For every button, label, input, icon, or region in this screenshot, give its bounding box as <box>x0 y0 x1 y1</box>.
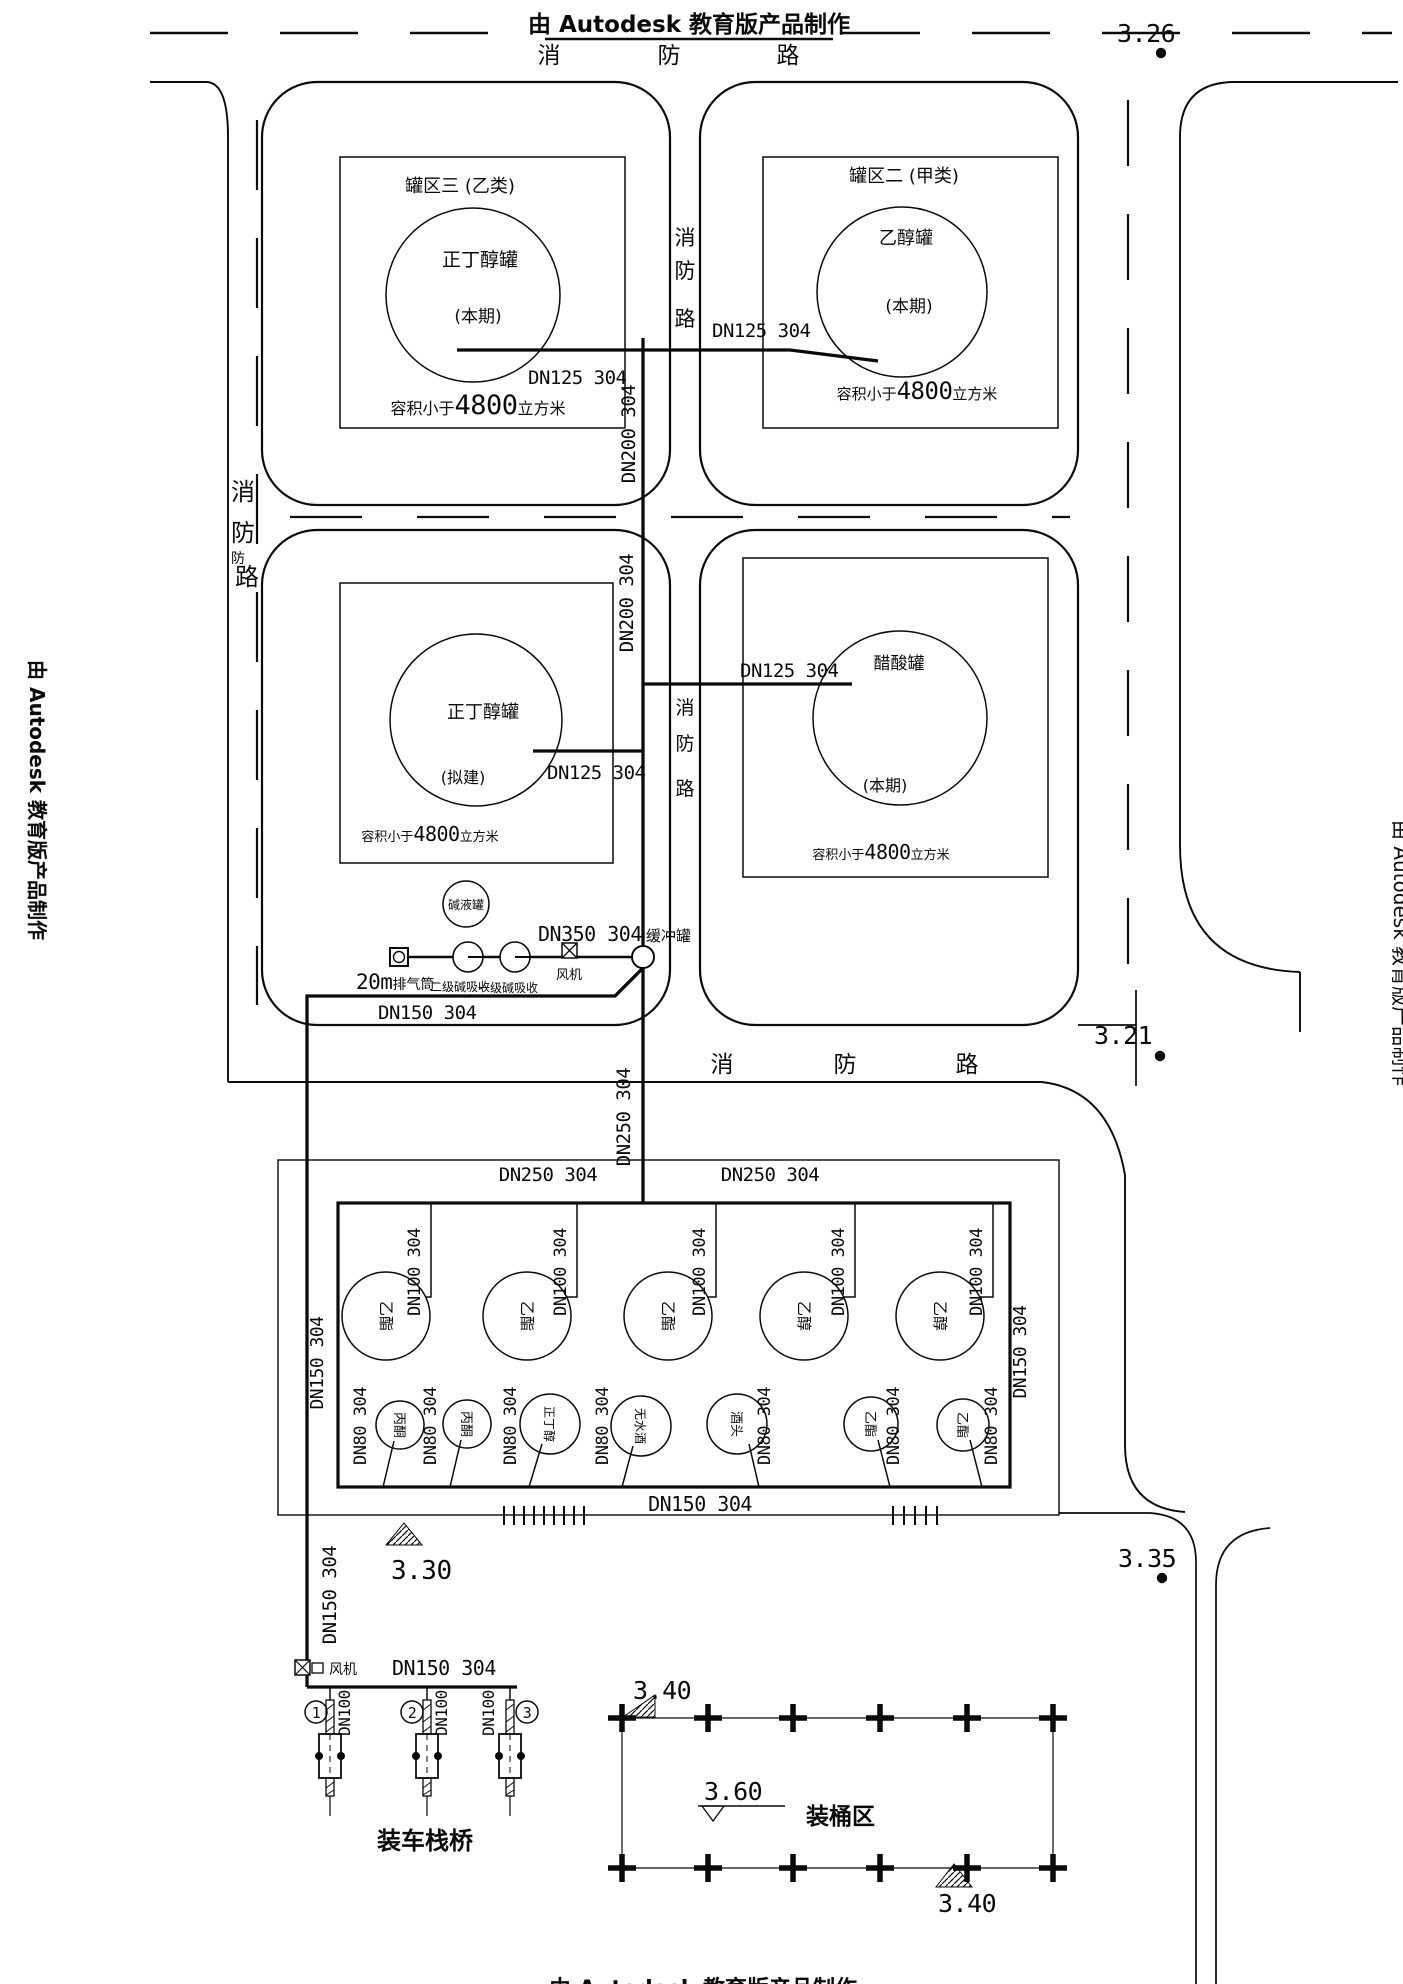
fan-label: 风机 <box>329 1662 357 1678</box>
farm-tank-label: 乙酯 <box>954 1412 969 1438</box>
road-edge-bottomright-outer <box>1216 1528 1270 1984</box>
pipe-label-dn150: DN150 304 <box>378 1002 477 1024</box>
road-label-bottom: 防 <box>834 1052 857 1078</box>
fan-label: 风机 <box>556 968 582 983</box>
tank-area-label: 罐区二 (甲类) <box>849 166 959 187</box>
pipe-label-dn100: DN100 304 <box>405 1228 425 1316</box>
road-label-center-row1: 消 <box>675 226 696 250</box>
pipe-label-dn150: DN150 304 <box>392 1656 496 1680</box>
benchmark-dot <box>1155 1051 1165 1061</box>
road-label-bottom: 路 <box>956 1052 979 1078</box>
tank-area-acetic: 醋酸罐 (本期) 容积小于4800立方米 <box>743 558 1048 877</box>
farm-tank-label: 丙酮 <box>458 1411 473 1437</box>
elevation-value: 3.21 <box>1094 1021 1152 1050</box>
pipe-label-dn150: DN150 304 <box>319 1546 341 1645</box>
station-number: 3 <box>523 1704 532 1722</box>
pipe-label-dn150: DN150 304 <box>648 1492 752 1516</box>
loading-arm <box>495 1687 525 1816</box>
volume-suffix: 立方米 <box>952 385 997 403</box>
volume-prefix: 容积小于 <box>361 829 413 845</box>
road-edge-bottomright-inner <box>1059 1513 1196 1984</box>
tank-area-2: 罐区二 (甲类) 乙醇罐 (本期) 容积小于4800立方米 <box>763 157 1058 428</box>
tank-volume: 容积小于4800立方米 <box>837 377 998 405</box>
road-curve-southeast-inner <box>1042 1082 1185 1512</box>
pipe-label-dn100-short: DN100 <box>479 1690 498 1736</box>
road-label-top: 防 <box>658 43 681 69</box>
elevation-value: 3.60 <box>704 1777 762 1806</box>
volume-number: 4800 <box>864 840 910 864</box>
stack-height: 20m <box>356 970 392 994</box>
fan-outlet-box <box>312 1663 323 1673</box>
tank-volume: 容积小于4800立方米 <box>390 390 565 421</box>
tank-name: 乙醇罐 <box>879 228 933 249</box>
autodesk-watermark-top: 由 Autodesk 教育版产品制作 <box>528 11 850 38</box>
pipe-label-dn200: DN200 304 <box>616 554 638 653</box>
tank-phase: (本期) <box>454 307 501 327</box>
drum-zone: 3.40 3.60 装桶区 3.40 <box>608 1676 1067 1918</box>
farm-tank-label: 乙醇 <box>795 1301 813 1331</box>
road-label-center-row1: 防 <box>675 259 696 283</box>
tank-name: 醋酸罐 <box>874 654 925 674</box>
autodesk-watermark-right: 由 Autodesk 教育版产品制作 <box>1389 820 1403 1086</box>
pipe-label-dn100: DN100 304 <box>551 1228 571 1316</box>
column-crosses <box>608 1704 1067 1882</box>
cad-site-plan: 消 防 路 消 防 防 路 消 防 路 消 防 路 消 防 路 罐区三 (乙类)… <box>0 0 1403 1984</box>
volume-number: 4800 <box>897 377 953 405</box>
volume-number: 4800 <box>454 390 517 421</box>
tank-dike-mid-right <box>743 558 1048 877</box>
block-boundary-top-left <box>262 82 670 505</box>
pipe-label-dn125: DN125 304 <box>528 367 627 389</box>
volume-suffix: 立方米 <box>911 847 950 863</box>
farm-tank-label: 乙酯 <box>862 1411 877 1437</box>
pipe-label-dn80: DN80 304 <box>501 1387 521 1465</box>
elevation-value: 3.30 <box>391 1556 452 1586</box>
road-edge-left-outer <box>150 82 228 1082</box>
farm-tank-label: 酒头 <box>728 1411 743 1437</box>
tank-area-planned: 正丁醇罐 (拟建) 容积小于4800立方米 <box>340 583 613 863</box>
tank-area-label: 罐区三 (乙类) <box>405 176 515 197</box>
road-label-center-row1: 路 <box>675 307 696 331</box>
farm-tank-label: 无水酒 <box>633 1408 647 1444</box>
road-label-center-row2: 路 <box>675 778 694 800</box>
pipe-label-dn100: DN100 304 <box>829 1228 849 1316</box>
volume-prefix: 容积小于 <box>812 847 864 863</box>
pipe-label-dn250: DN250 304 <box>721 1164 820 1186</box>
elevation-value: 3.40 <box>633 1676 691 1705</box>
volume-suffix: 立方米 <box>460 829 499 845</box>
road-edge-top-right <box>1180 82 1398 137</box>
elevation-triangle <box>386 1523 422 1545</box>
autodesk-watermark-bottom: 由 Autodesk 教育版产品制作 <box>549 1976 857 1984</box>
pipe-label-dn80: DN80 304 <box>351 1387 371 1465</box>
pipe-label-dn125: DN125 304 <box>740 660 839 682</box>
pipe-label-dn100: DN100 304 <box>967 1228 987 1316</box>
pipe-label-dn125: DN125 304 <box>712 320 811 342</box>
autodesk-watermark-left: 由 Autodesk 教育版产品制作 <box>25 660 49 940</box>
elevation-value: 3.35 <box>1118 1544 1176 1573</box>
benchmark-dot <box>1156 48 1166 58</box>
road-label-center-row2: 防 <box>675 733 694 755</box>
buffer-tank-label: 缓冲罐 <box>646 927 691 945</box>
drum-zone-label: 装桶区 <box>806 1804 875 1830</box>
tank-phase: (拟建) <box>441 768 486 787</box>
farm-tank-label: 乙醇 <box>931 1301 949 1331</box>
alkali-tank-label: 碱液罐 <box>448 897 484 912</box>
pipe-label-dn80: DN80 304 <box>755 1387 775 1465</box>
elevation-value: 3.26 <box>1117 19 1175 48</box>
farm-tank-label: 乙酯 <box>518 1301 536 1331</box>
tank-dike-mid-left <box>340 583 613 863</box>
tank-phase: (本期) <box>863 776 908 795</box>
road-label-bottom: 消 <box>711 1052 734 1078</box>
volume-suffix: 立方米 <box>518 399 566 418</box>
station-number: 1 <box>312 1704 321 1722</box>
volume-prefix: 容积小于 <box>390 399 454 418</box>
farm-tank-label: 乙酯 <box>377 1301 395 1331</box>
road-label-left: 路 <box>235 563 259 591</box>
scrubber-primary-label: 一级碱吸收 <box>478 981 538 995</box>
pipe-label-dn150: DN150 304 <box>307 1316 328 1409</box>
pipe-label-dn80: DN80 304 <box>884 1387 904 1465</box>
tank-circle-n-butanol-existing <box>386 208 560 382</box>
elevation-value: 3.40 <box>938 1889 996 1918</box>
volume-number: 4800 <box>413 822 459 846</box>
farm-tank-label: 正丁醇 <box>542 1406 557 1442</box>
volume-prefix: 容积小于 <box>837 385 897 403</box>
drum-zone-grid-lines <box>622 1718 1053 1868</box>
pipe-label-dn250: DN250 304 <box>499 1164 598 1186</box>
road-label-top: 消 <box>538 43 561 69</box>
road-label-center-row2: 消 <box>675 697 694 719</box>
road-label-left: 防 <box>231 519 255 547</box>
pipe-label-dn150: DN150 304 <box>1010 1305 1031 1398</box>
tank-name: 正丁醇罐 <box>442 249 518 271</box>
block-boundary-top-right <box>700 82 1078 505</box>
benchmark-dot <box>1157 1573 1167 1583</box>
pipe-label-dn200: DN200 304 <box>618 385 640 484</box>
pipe-label-dn350: DN350 304 <box>538 922 642 946</box>
buffer-tank-circle <box>632 946 654 968</box>
farm-tank-label: 丙酮 <box>391 1412 406 1438</box>
vent-scrubber-train: 碱液罐 20m排气筒 二级碱吸收 一级碱吸收 风机 缓冲罐 DN350 304 <box>356 881 691 995</box>
pipe-label-dn100-short: DN100 <box>335 1690 354 1736</box>
stack-name: 排气筒 <box>392 976 434 993</box>
tank-phase: (本期) <box>885 297 932 317</box>
pipe-label-dn80: DN80 304 <box>982 1387 1002 1465</box>
pipe-label-dn250: DN250 304 <box>613 1068 635 1167</box>
elevation-open-triangle <box>702 1806 724 1821</box>
tank-volume: 容积小于4800立方米 <box>361 822 498 846</box>
road-label-left: 消 <box>231 478 255 506</box>
pipe-label-dn100-short: DN100 <box>432 1690 451 1736</box>
pipe-label-dn125: DN125 304 <box>547 762 646 784</box>
pipe-label-dn80: DN80 304 <box>421 1387 441 1465</box>
loading-gantry-label: 装车栈桥 <box>377 1827 474 1855</box>
manifold-farm: DN250 304 DN250 304 DN150 304 DN150 304 … <box>278 1160 1059 1516</box>
exhaust-stack-label: 20m排气筒 <box>356 970 434 994</box>
pipe-dn125-row1 <box>457 350 878 361</box>
tank-volume: 容积小于4800立方米 <box>812 840 949 864</box>
farm-tank-label: 乙酯 <box>659 1301 677 1331</box>
exhaust-stack-symbol <box>390 948 408 966</box>
main-pipes: DN125 304 DN125 304 DN125 304 DN125 304 … <box>307 320 878 1687</box>
station-number: 2 <box>408 1704 417 1722</box>
pipe-label-dn100: DN100 304 <box>690 1228 710 1316</box>
road-label-top: 路 <box>777 43 800 69</box>
pipe-label-dn80: DN80 304 <box>593 1387 613 1465</box>
tank-name: 正丁醇罐 <box>447 702 519 723</box>
road-curve-right-east <box>1180 845 1300 1032</box>
